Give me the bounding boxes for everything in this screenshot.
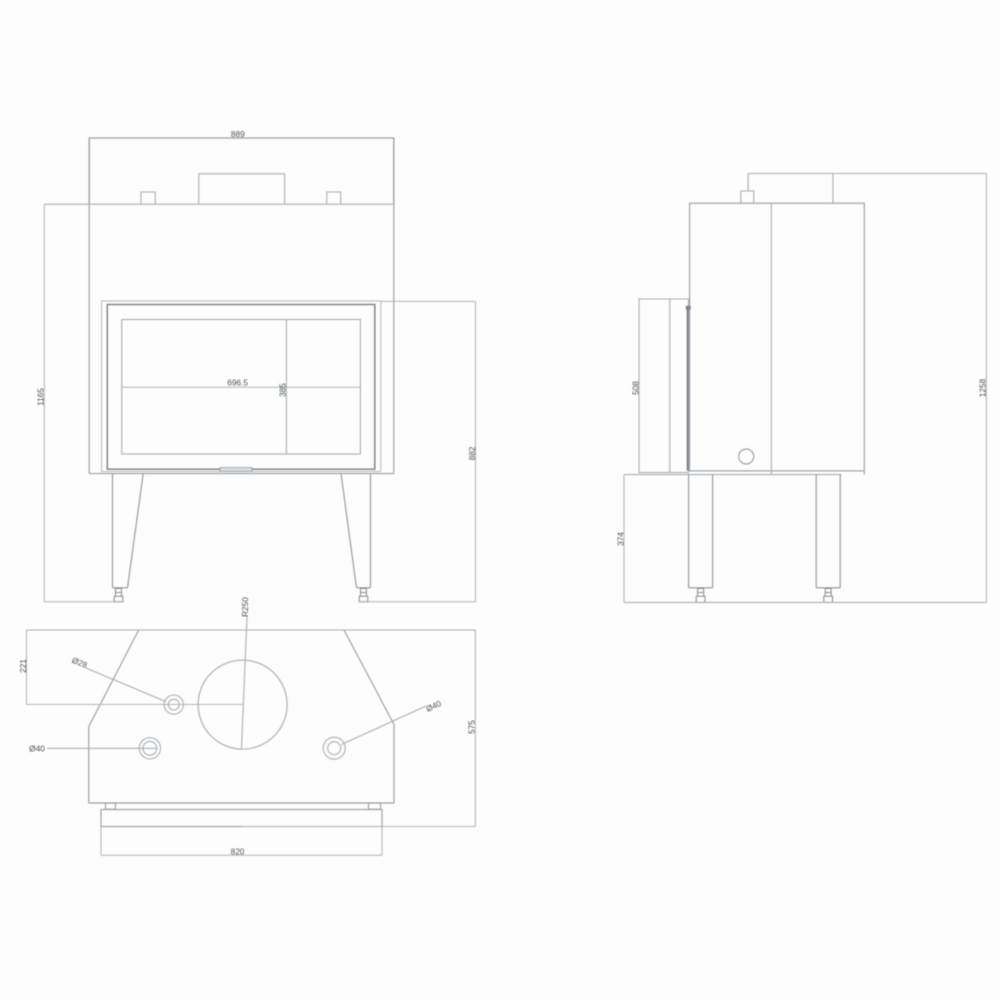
svg-text:882: 882 [467, 446, 477, 460]
svg-text:221: 221 [18, 659, 28, 673]
svg-text:575: 575 [467, 720, 477, 734]
svg-text:385: 385 [278, 383, 288, 397]
svg-text:1165: 1165 [36, 388, 46, 406]
svg-text:508: 508 [630, 381, 640, 395]
svg-text:1258: 1258 [978, 378, 988, 397]
svg-text:696.5: 696.5 [227, 378, 248, 388]
svg-text:Ø40: Ø40 [424, 698, 443, 714]
svg-text:889: 889 [231, 129, 245, 139]
svg-text:374: 374 [615, 532, 625, 546]
svg-text:820: 820 [231, 847, 245, 857]
svg-text:R250: R250 [240, 597, 250, 617]
svg-text:Ø40: Ø40 [29, 743, 45, 753]
